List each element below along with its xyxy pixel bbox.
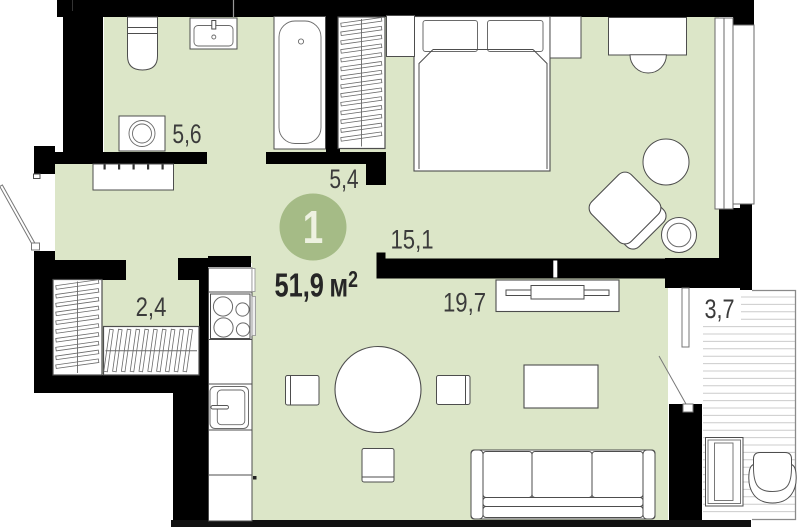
svg-text:15,1: 15,1 bbox=[390, 226, 433, 256]
svg-text:5,6: 5,6 bbox=[172, 120, 201, 150]
svg-text:3,7: 3,7 bbox=[704, 295, 734, 325]
svg-text:2,4: 2,4 bbox=[136, 293, 167, 323]
svg-text:5,4: 5,4 bbox=[329, 165, 358, 195]
svg-text:19,7: 19,7 bbox=[443, 289, 486, 319]
svg-text:1: 1 bbox=[303, 201, 323, 253]
svg-text:51,9м2: 51,9м2 bbox=[275, 267, 358, 305]
